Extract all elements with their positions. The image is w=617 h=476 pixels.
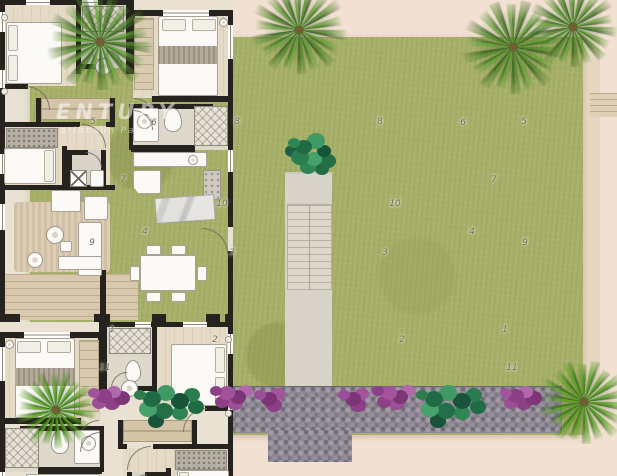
window xyxy=(228,392,233,410)
bed-runner xyxy=(158,46,218,64)
watermark-text: ENTURY xyxy=(56,100,179,124)
palm-tree xyxy=(42,0,158,90)
wall xyxy=(153,444,233,449)
room-label-terrace11-right: 11 xyxy=(506,363,517,373)
shower xyxy=(109,328,151,354)
hall-closet xyxy=(123,420,192,442)
pillow xyxy=(44,150,54,182)
front-shrubs xyxy=(416,390,428,400)
shower xyxy=(194,106,228,146)
door-arc xyxy=(183,408,207,432)
room-label-bath10-right: 10 xyxy=(389,199,400,209)
wardrobe xyxy=(175,450,227,470)
flower-bed xyxy=(500,388,512,398)
dining-table xyxy=(140,255,196,291)
tv-cabinet xyxy=(51,190,81,212)
room-label-kitchen-right: 3 xyxy=(382,248,388,258)
front-shrubs xyxy=(134,390,146,400)
flower-bed xyxy=(210,386,222,396)
room-label-dining-left: 2 xyxy=(212,335,218,345)
window xyxy=(0,204,5,230)
bedside-lamp xyxy=(1,88,8,95)
window xyxy=(228,25,233,59)
coffee-table xyxy=(60,241,72,252)
window xyxy=(135,322,151,327)
wall xyxy=(127,472,132,476)
wall xyxy=(102,322,233,327)
window xyxy=(0,70,5,88)
armchair xyxy=(84,196,108,220)
floorplan-canvas: ENTURY aribbean Para 1 2 3 4 5 6 7 8 9 1… xyxy=(0,0,617,476)
toilet xyxy=(125,360,141,382)
wall xyxy=(145,472,166,476)
bedside-lamp xyxy=(219,18,228,27)
pillow xyxy=(179,472,189,476)
palm-tree xyxy=(247,0,351,74)
room-label-bath10-left: 10 xyxy=(216,199,227,209)
toilet xyxy=(90,170,104,187)
wall xyxy=(0,314,20,322)
room-label-bedroom9-right: 9 xyxy=(522,238,528,248)
dining-chair xyxy=(171,245,186,255)
dining-chair xyxy=(146,292,161,302)
room-label-closet7-right: 7 xyxy=(491,175,497,185)
fridge xyxy=(133,170,161,194)
pillow xyxy=(192,19,216,31)
flower-bed xyxy=(338,390,350,400)
bedside-lamp xyxy=(225,336,232,343)
wall xyxy=(38,467,102,474)
palm-tree xyxy=(14,371,98,449)
garden-steps xyxy=(590,93,617,117)
round-chair xyxy=(27,252,43,268)
window xyxy=(0,472,5,476)
pillow xyxy=(17,341,41,353)
kitchen-sink xyxy=(188,155,198,165)
dining-chair xyxy=(130,266,140,281)
room-label-closet7-left: 7 xyxy=(120,175,126,185)
wall xyxy=(152,322,157,396)
room-label-bedroom5-right: 5 xyxy=(521,117,527,127)
wardrobe xyxy=(6,128,58,148)
room-label-kitchen-left: 3 xyxy=(229,248,235,258)
wall xyxy=(225,314,233,322)
room-label-living-left: 1 xyxy=(109,325,115,335)
dining-chair xyxy=(146,245,161,255)
room-label-wc-left: 4 xyxy=(142,227,148,237)
pillow xyxy=(8,55,18,81)
room-label-bedroom8-left: 8 xyxy=(234,117,240,127)
watermark-subtext: aribbean Para xyxy=(60,126,149,136)
room-label-living-right: 1 xyxy=(502,325,508,335)
pillow xyxy=(215,347,225,373)
bedside-lamp xyxy=(225,410,232,417)
wall xyxy=(100,426,104,472)
window xyxy=(0,347,5,381)
room-label-bath6-right: 6 xyxy=(460,118,466,128)
dining-chair xyxy=(197,266,207,281)
porch-column xyxy=(206,314,220,322)
pillow xyxy=(162,19,186,31)
cobblestone-entry-path xyxy=(268,430,352,462)
courtyard-shrubs xyxy=(288,138,300,148)
porch-column xyxy=(152,314,166,322)
terrace-deck xyxy=(4,274,138,320)
room-label-wc-right: 4 xyxy=(469,227,475,237)
staircase xyxy=(287,204,332,290)
bedside-lamp xyxy=(5,340,14,349)
window xyxy=(228,150,233,172)
wall xyxy=(100,270,106,316)
room-label-bedroom9-left: 9 xyxy=(89,238,95,248)
kitchen-island xyxy=(154,194,216,224)
wall xyxy=(118,444,127,449)
palm-tree xyxy=(536,360,617,444)
pillow xyxy=(47,341,71,353)
room-label-terrace11-left: 11 xyxy=(99,363,110,373)
wall xyxy=(67,150,88,155)
sofa-chaise xyxy=(58,256,102,270)
wall xyxy=(166,468,171,476)
porch-column xyxy=(94,314,110,322)
room-label-dining-right: 2 xyxy=(399,335,405,345)
palm-tree xyxy=(525,0,617,67)
central-courtyard xyxy=(285,172,332,386)
washing-machine xyxy=(70,170,87,187)
window xyxy=(183,322,207,327)
flower-bed xyxy=(254,390,266,400)
room-label-bedroom8-right: 8 xyxy=(377,117,383,127)
wall xyxy=(131,145,195,152)
flower-bed xyxy=(372,386,384,396)
pillow xyxy=(8,25,18,51)
dining-chair xyxy=(171,292,186,302)
bedside-lamp xyxy=(1,14,8,21)
